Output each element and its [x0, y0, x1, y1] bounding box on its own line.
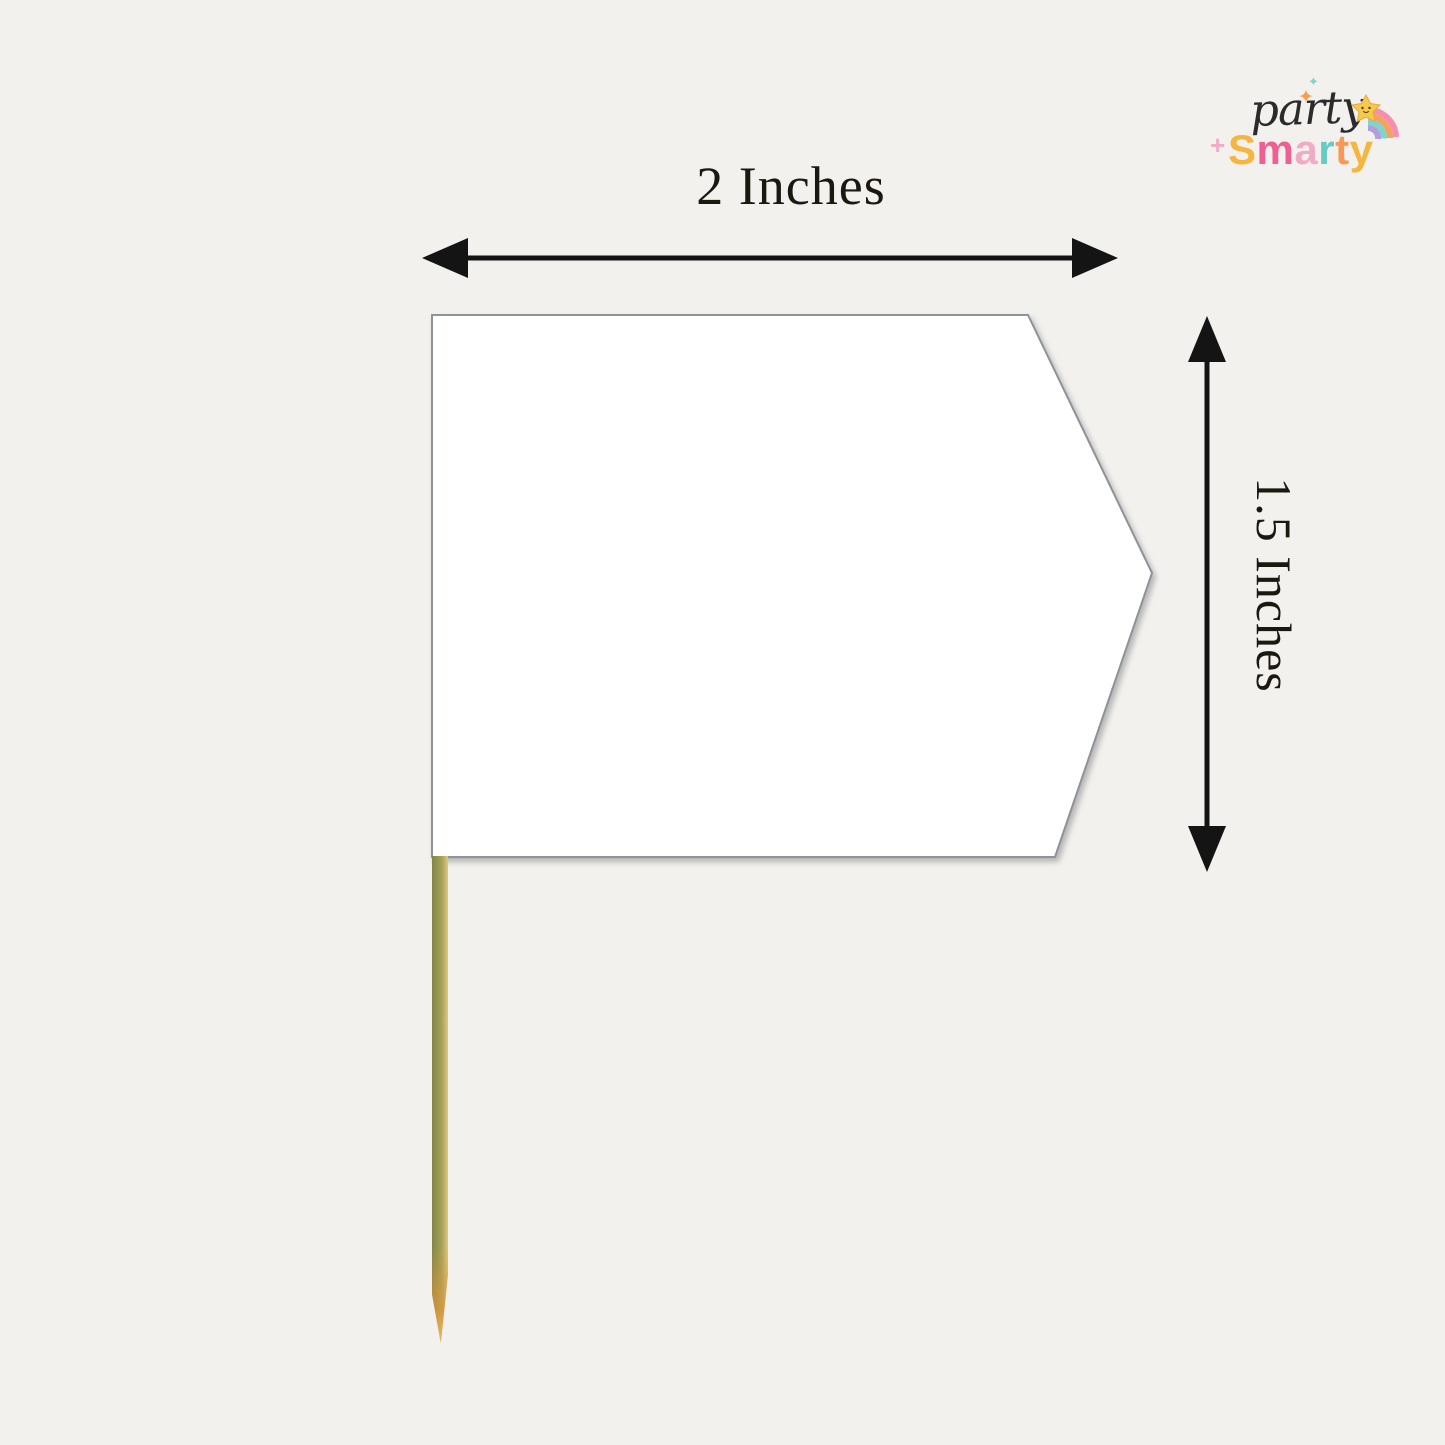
- plus-sparkle-icon: +: [1210, 132, 1225, 158]
- arrow-shaft: [1205, 356, 1210, 832]
- logo-letter: y: [1350, 126, 1374, 173]
- arrow-bottom-head: [1188, 826, 1226, 872]
- arrow-right-head: [1072, 238, 1118, 278]
- width-dimension-label: 2 Inches: [591, 158, 991, 214]
- arrow-left-head: [422, 238, 468, 278]
- brand-logo: ✦ ✦ + party Smarty: [1200, 70, 1420, 185]
- logo-letter: a: [1294, 126, 1318, 173]
- toothpick-stick: [432, 856, 448, 1343]
- logo-letter: r: [1318, 126, 1335, 173]
- height-dimension-label: 1.5 Inches: [1245, 477, 1303, 693]
- star-eye: [1368, 107, 1370, 109]
- logo-word-smarty: Smarty: [1228, 128, 1373, 172]
- arrow-shaft: [462, 256, 1078, 261]
- vertical-dimension-arrow: [1185, 314, 1229, 874]
- arrow-top-head: [1188, 316, 1226, 362]
- flag-shape: [432, 315, 1152, 857]
- logo-letter: S: [1228, 126, 1257, 173]
- flag-topper: [425, 308, 1165, 868]
- logo-letter: m: [1257, 126, 1295, 173]
- horizontal-dimension-arrow: [420, 234, 1120, 282]
- star-eye: [1361, 107, 1363, 109]
- product-dimension-diagram: 2 Inches 1.5 Inches ✦ ✦ + party: [0, 0, 1445, 1445]
- logo-letter: t: [1335, 126, 1350, 173]
